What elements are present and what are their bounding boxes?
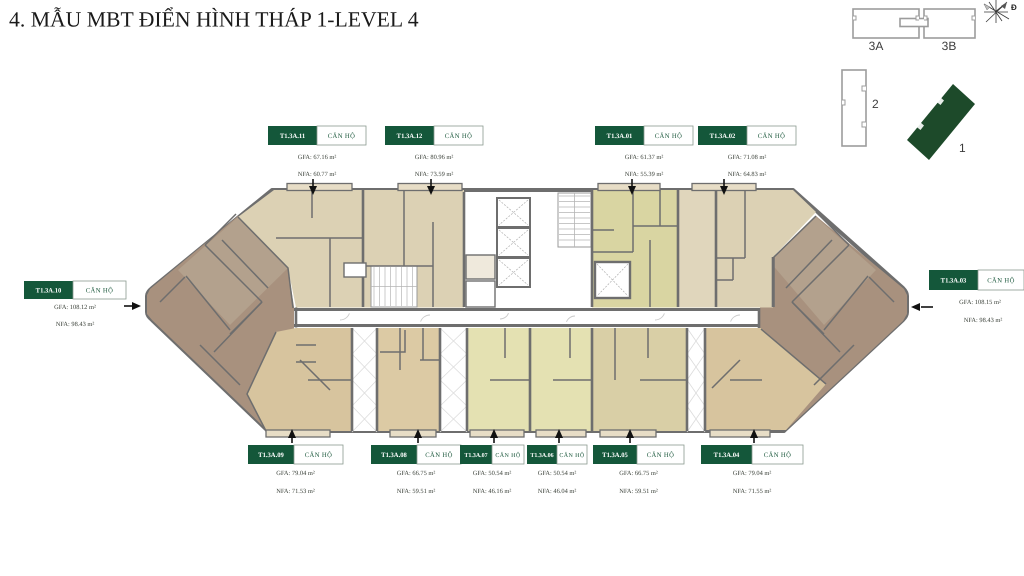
svg-text:T1.3A.09: T1.3A.09 — [258, 452, 284, 459]
svg-text:CĂN HỘ: CĂN HỘ — [305, 451, 333, 459]
svg-text:GFA: 61.37 m²: GFA: 61.37 m² — [625, 154, 664, 161]
svg-text:3A: 3A — [869, 39, 884, 53]
svg-text:NFA: 60.77 m²: NFA: 60.77 m² — [298, 171, 337, 178]
svg-text:T1.3A.01: T1.3A.01 — [607, 133, 633, 140]
svg-text:CĂN HỘ: CĂN HỘ — [559, 451, 585, 459]
svg-text:GFA: 67.16 m²: GFA: 67.16 m² — [298, 154, 337, 161]
svg-text:4. MẪU MBT ĐIỂN HÌNH THÁP 1-LE: 4. MẪU MBT ĐIỂN HÌNH THÁP 1-LEVEL 4 — [9, 7, 419, 32]
svg-text:3B: 3B — [942, 39, 957, 53]
svg-text:CĂN HỘ: CĂN HỘ — [495, 451, 521, 459]
svg-text:CĂN HỘ: CĂN HỘ — [764, 451, 792, 459]
svg-text:CĂN HỘ: CĂN HỘ — [758, 132, 786, 140]
svg-text:NFA: 46.16 m²: NFA: 46.16 m² — [473, 488, 512, 495]
svg-text:T1.3A.08: T1.3A.08 — [381, 452, 407, 459]
svg-text:CĂN HỘ: CĂN HỘ — [445, 132, 473, 140]
svg-text:NFA: 55.39 m²: NFA: 55.39 m² — [625, 171, 664, 178]
svg-text:NFA: 71.53 m²: NFA: 71.53 m² — [276, 488, 315, 495]
svg-text:CĂN HỘ: CĂN HỘ — [655, 132, 683, 140]
svg-text:GFA: 71.08 m²: GFA: 71.08 m² — [728, 154, 767, 161]
svg-text:GFA: 50.54 m²: GFA: 50.54 m² — [538, 470, 577, 477]
svg-text:1: 1 — [959, 141, 966, 155]
svg-text:GFA: 108.12 m²: GFA: 108.12 m² — [54, 304, 96, 311]
svg-text:T1.3A.04: T1.3A.04 — [714, 452, 740, 459]
svg-text:T1.3A.12: T1.3A.12 — [397, 133, 423, 140]
svg-text:NFA: 46.04 m²: NFA: 46.04 m² — [538, 488, 577, 495]
svg-text:NFA: 73.59 m²: NFA: 73.59 m² — [415, 171, 454, 178]
svg-text:2: 2 — [872, 97, 879, 111]
svg-text:NFA: 64.83 m²: NFA: 64.83 m² — [728, 171, 767, 178]
svg-text:CĂN HỘ: CĂN HỘ — [987, 277, 1015, 285]
svg-text:T1.3A.03: T1.3A.03 — [941, 278, 967, 285]
svg-text:CĂN HỘ: CĂN HỘ — [86, 286, 114, 294]
svg-text:NFA: 59.51 m²: NFA: 59.51 m² — [619, 488, 658, 495]
svg-text:T1.3A.02: T1.3A.02 — [710, 133, 736, 140]
svg-text:T1.3A.10: T1.3A.10 — [36, 287, 62, 294]
svg-text:T1.3A.05: T1.3A.05 — [602, 452, 628, 459]
svg-text:NFA: 98.43 m²: NFA: 98.43 m² — [964, 317, 1003, 324]
svg-text:CĂN HỘ: CĂN HỘ — [328, 132, 356, 140]
svg-text:GFA: 79.04 m²: GFA: 79.04 m² — [733, 470, 772, 477]
svg-text:GFA: 108.15 m²: GFA: 108.15 m² — [959, 299, 1001, 306]
svg-text:T1.3A.06: T1.3A.06 — [530, 453, 553, 459]
svg-text:GFA: 79.04 m²: GFA: 79.04 m² — [276, 470, 315, 477]
svg-text:T1.3A.11: T1.3A.11 — [280, 133, 305, 140]
svg-text:CĂN HỘ: CĂN HỘ — [647, 451, 675, 459]
svg-text:CĂN HỘ: CĂN HỘ — [425, 451, 453, 459]
svg-text:NFA: 98.43 m²: NFA: 98.43 m² — [56, 321, 95, 328]
svg-text:GFA: 50.54 m²: GFA: 50.54 m² — [473, 470, 512, 477]
svg-text:GFA: 80.96 m²: GFA: 80.96 m² — [415, 154, 454, 161]
svg-text:T1.3A.07: T1.3A.07 — [464, 453, 487, 459]
svg-text:GFA: 66.75 m²: GFA: 66.75 m² — [619, 470, 658, 477]
svg-text:NFA: 71.55 m²: NFA: 71.55 m² — [733, 488, 772, 495]
svg-text:Đ: Đ — [1011, 3, 1017, 12]
svg-text:GFA: 66.75 m²: GFA: 66.75 m² — [397, 470, 436, 477]
svg-text:NFA: 59.51 m²: NFA: 59.51 m² — [397, 488, 436, 495]
